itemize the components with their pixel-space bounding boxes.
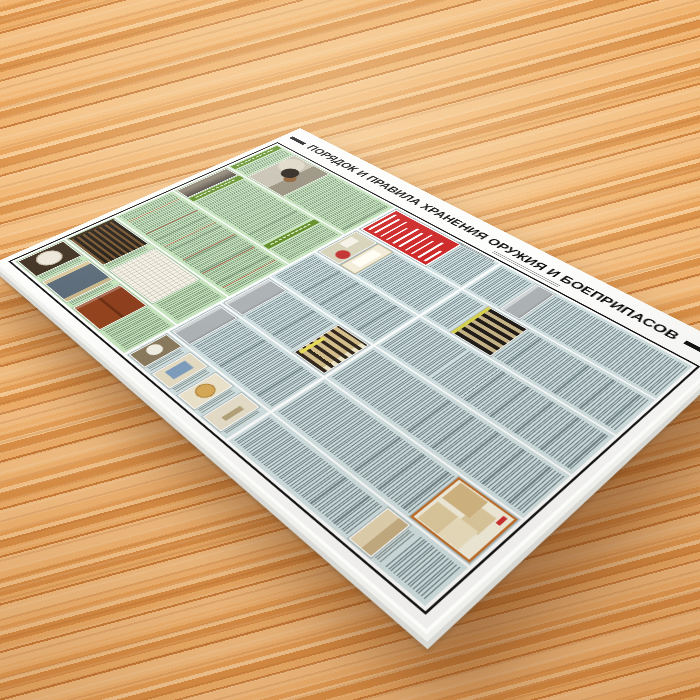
title-dash-bottom [683,340,700,356]
title-dash-top [289,136,306,145]
scene: ПОРЯДОК И ПРАВИЛА ХРАНЕНИЯ ОРУЖИЯ И БОЕП… [0,0,700,700]
